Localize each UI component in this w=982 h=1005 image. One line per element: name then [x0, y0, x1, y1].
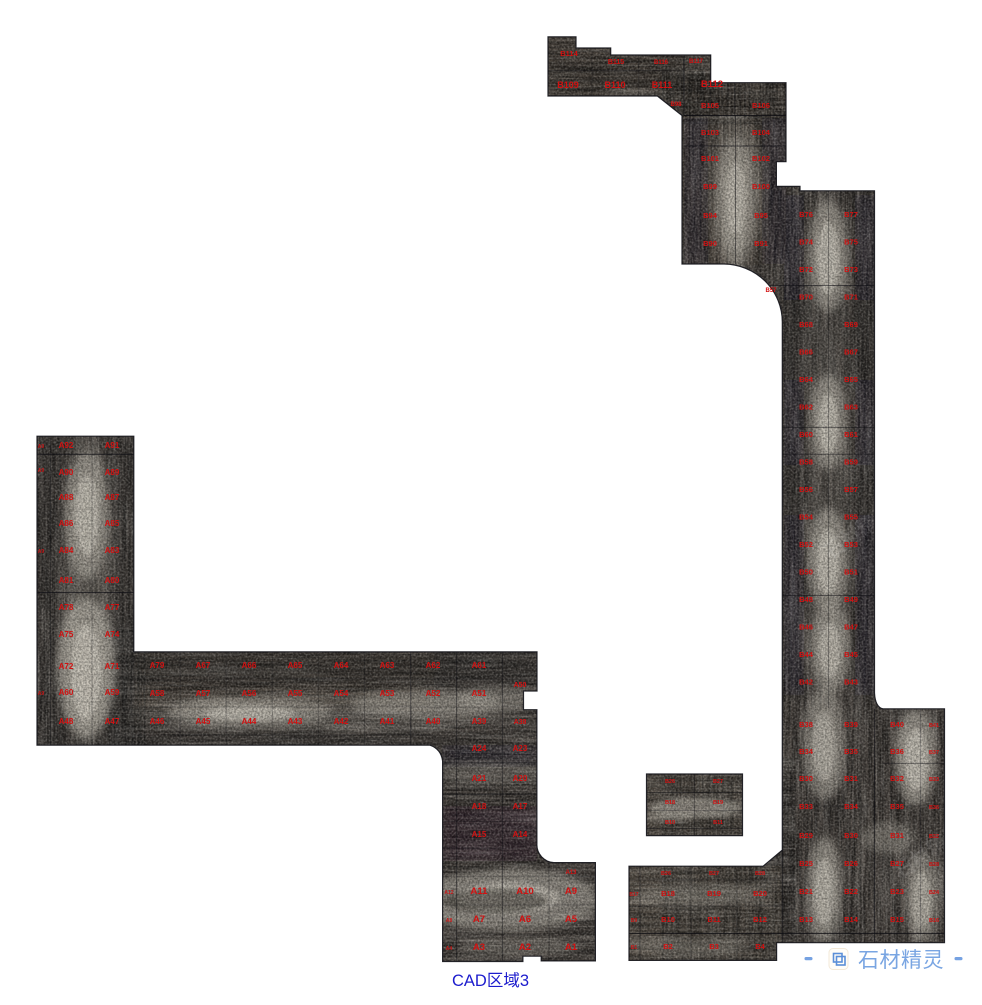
svg-text:B54: B54: [799, 513, 814, 522]
svg-text:A67: A67: [196, 661, 211, 670]
svg-text:A14: A14: [513, 830, 528, 839]
svg-text:B68: B68: [799, 320, 813, 329]
svg-text:A9: A9: [38, 444, 45, 450]
svg-text:A63: A63: [380, 661, 395, 670]
svg-text:A39: A39: [472, 717, 487, 726]
svg-text:B12: B12: [753, 915, 767, 924]
svg-text:B30: B30: [844, 831, 858, 840]
svg-text:A75: A75: [59, 630, 74, 639]
svg-text:A2: A2: [519, 942, 531, 953]
svg-text:B55: B55: [844, 513, 858, 522]
svg-text:A9: A9: [38, 549, 45, 555]
svg-text:B20: B20: [753, 889, 767, 898]
svg-text:A42: A42: [334, 717, 349, 726]
svg-text:B28: B28: [755, 871, 765, 877]
svg-text:B28: B28: [929, 862, 939, 868]
svg-text:B19: B19: [713, 800, 723, 806]
svg-text:A56: A56: [242, 689, 257, 698]
svg-text:A79: A79: [150, 661, 165, 670]
svg-text:B1: B1: [631, 945, 638, 951]
svg-text:B106: B106: [752, 101, 770, 110]
svg-text:B103: B103: [701, 128, 719, 137]
svg-text:B116: B116: [654, 60, 669, 66]
svg-text:A92: A92: [59, 441, 74, 450]
svg-text:A71: A71: [105, 662, 120, 671]
svg-text:B59: B59: [844, 458, 858, 467]
svg-text:A5: A5: [565, 914, 578, 925]
svg-text:A7: A7: [473, 914, 485, 925]
svg-text:A13: A13: [565, 870, 577, 876]
svg-text:A18: A18: [472, 802, 487, 811]
svg-text:B74: B74: [799, 238, 814, 247]
svg-text:A65: A65: [288, 661, 303, 670]
svg-text:B40: B40: [890, 720, 904, 729]
svg-text:B32: B32: [890, 774, 904, 783]
svg-text:B112: B112: [701, 79, 723, 90]
svg-text:B33: B33: [799, 802, 813, 811]
svg-text:B9: B9: [631, 918, 638, 924]
svg-text:A81: A81: [59, 576, 74, 585]
svg-text:B61: B61: [844, 430, 858, 439]
svg-text:A1: A1: [565, 942, 578, 953]
svg-text:B33: B33: [929, 777, 939, 783]
svg-text:A53: A53: [380, 689, 395, 698]
svg-text:B56: B56: [799, 485, 813, 494]
svg-text:A90: A90: [59, 468, 74, 477]
svg-text:A21: A21: [472, 774, 487, 783]
svg-text:A61: A61: [472, 661, 487, 670]
svg-text:A47: A47: [105, 717, 120, 726]
svg-text:B11: B11: [713, 820, 723, 826]
svg-text:B25: B25: [799, 859, 813, 868]
svg-text:A48: A48: [59, 717, 74, 726]
svg-text:B47: B47: [844, 623, 858, 632]
svg-text:B11: B11: [707, 915, 720, 924]
svg-text:B57: B57: [844, 485, 858, 494]
svg-text:A72: A72: [59, 662, 74, 671]
svg-text:A15: A15: [472, 830, 487, 839]
svg-text:A41: A41: [380, 717, 395, 726]
svg-text:B35: B35: [890, 802, 904, 811]
svg-text:B22: B22: [844, 887, 858, 896]
svg-text:石材精灵: 石材精灵: [858, 949, 944, 972]
svg-text:A60: A60: [59, 688, 74, 697]
svg-text:A91: A91: [105, 441, 120, 450]
svg-text:B41: B41: [929, 723, 939, 729]
svg-text:B27: B27: [890, 859, 904, 868]
svg-text:A43: A43: [288, 717, 303, 726]
svg-text:A55: A55: [288, 689, 303, 698]
svg-text:A24: A24: [472, 744, 487, 753]
svg-text:B27: B27: [713, 779, 723, 785]
svg-text:A85: A85: [105, 519, 120, 528]
svg-text:B117: B117: [689, 59, 704, 65]
svg-text:B73: B73: [844, 265, 858, 274]
svg-text:A77: A77: [105, 603, 120, 612]
svg-text:B53: B53: [844, 540, 858, 549]
svg-text:B50: B50: [799, 568, 813, 577]
svg-text:B102: B102: [752, 154, 770, 163]
svg-text:B37: B37: [929, 750, 939, 756]
svg-text:B71: B71: [844, 293, 858, 302]
svg-text:B60: B60: [799, 430, 813, 439]
svg-text:B72: B72: [799, 265, 813, 274]
svg-text:B57: B57: [765, 288, 777, 294]
svg-text:B13: B13: [799, 915, 813, 924]
svg-text:A87: A87: [105, 493, 120, 502]
svg-text:B35: B35: [844, 747, 858, 756]
svg-text:B65: B65: [844, 375, 858, 384]
svg-text:A88: A88: [59, 493, 74, 502]
svg-text:B26: B26: [665, 779, 675, 785]
svg-text:B115: B115: [608, 59, 624, 66]
svg-text:A89: A89: [105, 468, 120, 477]
svg-text:A10: A10: [516, 886, 533, 897]
svg-text:B34: B34: [844, 802, 859, 811]
svg-text:A83: A83: [105, 546, 120, 555]
svg-text:B48: B48: [799, 595, 813, 604]
svg-text:A23: A23: [513, 744, 528, 753]
svg-text:B111: B111: [652, 80, 673, 90]
svg-text:B23: B23: [890, 887, 904, 896]
svg-text:B62: B62: [799, 403, 813, 412]
svg-text:A74: A74: [105, 630, 120, 639]
svg-text:B3: B3: [709, 942, 719, 951]
svg-text:B95: B95: [754, 211, 768, 220]
svg-text:B94: B94: [703, 211, 718, 220]
svg-text:B36: B36: [929, 805, 939, 811]
svg-text:B15: B15: [890, 915, 904, 924]
svg-text:A40: A40: [426, 717, 441, 726]
svg-text:B105: B105: [701, 101, 719, 110]
svg-text:B90: B90: [703, 239, 717, 248]
svg-text:B67: B67: [844, 348, 858, 357]
svg-text:B109: B109: [557, 80, 579, 90]
svg-text:B75: B75: [844, 238, 858, 247]
svg-text:B76: B76: [799, 210, 813, 219]
svg-text:A57: A57: [196, 689, 211, 698]
svg-text:A50: A50: [514, 682, 527, 689]
svg-text:B10: B10: [665, 820, 675, 826]
svg-text:B101: B101: [701, 154, 719, 163]
svg-text:B104: B104: [752, 128, 771, 137]
svg-text:A86: A86: [59, 519, 74, 528]
svg-text:A9: A9: [38, 691, 45, 697]
svg-text:B31: B31: [844, 774, 858, 783]
svg-text:A17: A17: [513, 802, 528, 811]
svg-text:A45: A45: [196, 717, 211, 726]
svg-text:B27: B27: [709, 871, 719, 877]
svg-text:B51: B51: [844, 568, 858, 577]
svg-text:B42: B42: [799, 678, 813, 687]
svg-text:B31: B31: [890, 831, 904, 840]
svg-text:A84: A84: [59, 546, 74, 555]
svg-text:B46: B46: [799, 623, 813, 632]
svg-text:B10: B10: [661, 915, 675, 924]
svg-text:A6: A6: [519, 914, 531, 925]
svg-text:A52: A52: [426, 689, 441, 698]
svg-text:B49: B49: [844, 595, 858, 604]
svg-text:CAD区域3: CAD区域3: [452, 971, 529, 990]
svg-text:B26: B26: [661, 871, 671, 877]
svg-text:B58: B58: [799, 458, 813, 467]
svg-text:B91: B91: [754, 239, 768, 248]
svg-text:A58: A58: [150, 689, 165, 698]
svg-text:A4: A4: [446, 946, 453, 952]
svg-text:B44: B44: [799, 650, 814, 659]
svg-text:B64: B64: [799, 375, 814, 384]
svg-text:A44: A44: [242, 717, 257, 726]
svg-text:A12: A12: [444, 890, 453, 896]
svg-text:B2: B2: [663, 942, 673, 951]
svg-text:A11: A11: [471, 886, 489, 897]
svg-text:B38: B38: [799, 720, 813, 729]
svg-text:A66: A66: [242, 661, 257, 670]
svg-text:B36: B36: [890, 747, 904, 756]
svg-text:A59: A59: [105, 688, 120, 697]
svg-text:B43: B43: [844, 678, 858, 687]
svg-text:A38: A38: [514, 719, 527, 726]
svg-text:A80: A80: [105, 576, 120, 585]
svg-text:B19: B19: [707, 889, 721, 898]
svg-text:B45: B45: [844, 650, 858, 659]
svg-text:B34: B34: [799, 747, 814, 756]
svg-text:A54: A54: [334, 689, 349, 698]
svg-text:B69: B69: [844, 320, 858, 329]
svg-text:B26: B26: [844, 859, 858, 868]
svg-text:B21: B21: [799, 887, 813, 896]
svg-text:B29: B29: [799, 831, 813, 840]
svg-text:B66: B66: [799, 348, 813, 357]
svg-text:A9: A9: [565, 886, 577, 897]
svg-text:B18: B18: [665, 800, 675, 806]
svg-text:B16: B16: [929, 918, 939, 924]
svg-text:B17: B17: [629, 892, 638, 898]
svg-text:B63: B63: [844, 403, 858, 412]
svg-text:B98: B98: [670, 102, 682, 108]
svg-text:B110: B110: [604, 80, 625, 90]
svg-text:B4: B4: [755, 942, 765, 951]
svg-text:B77: B77: [844, 210, 858, 219]
svg-text:B24: B24: [929, 890, 940, 896]
svg-text:A9: A9: [38, 468, 45, 474]
svg-text:B100: B100: [752, 182, 770, 191]
svg-text:B70: B70: [799, 293, 813, 302]
svg-text:A51: A51: [472, 689, 487, 698]
svg-text:B32: B32: [929, 834, 939, 840]
svg-text:A20: A20: [513, 774, 528, 783]
svg-text:B52: B52: [799, 540, 813, 549]
svg-text:B114: B114: [560, 49, 578, 58]
svg-text:A62: A62: [426, 661, 441, 670]
svg-text:A8: A8: [446, 918, 453, 924]
svg-text:A46: A46: [150, 717, 165, 726]
svg-text:A64: A64: [334, 661, 349, 670]
svg-text:A3: A3: [473, 942, 485, 953]
svg-text:B99: B99: [703, 182, 717, 191]
svg-text:A78: A78: [59, 603, 74, 612]
svg-text:B30: B30: [799, 774, 813, 783]
svg-text:B39: B39: [844, 720, 858, 729]
svg-text:B14: B14: [844, 915, 859, 924]
svg-text:B18: B18: [661, 889, 675, 898]
